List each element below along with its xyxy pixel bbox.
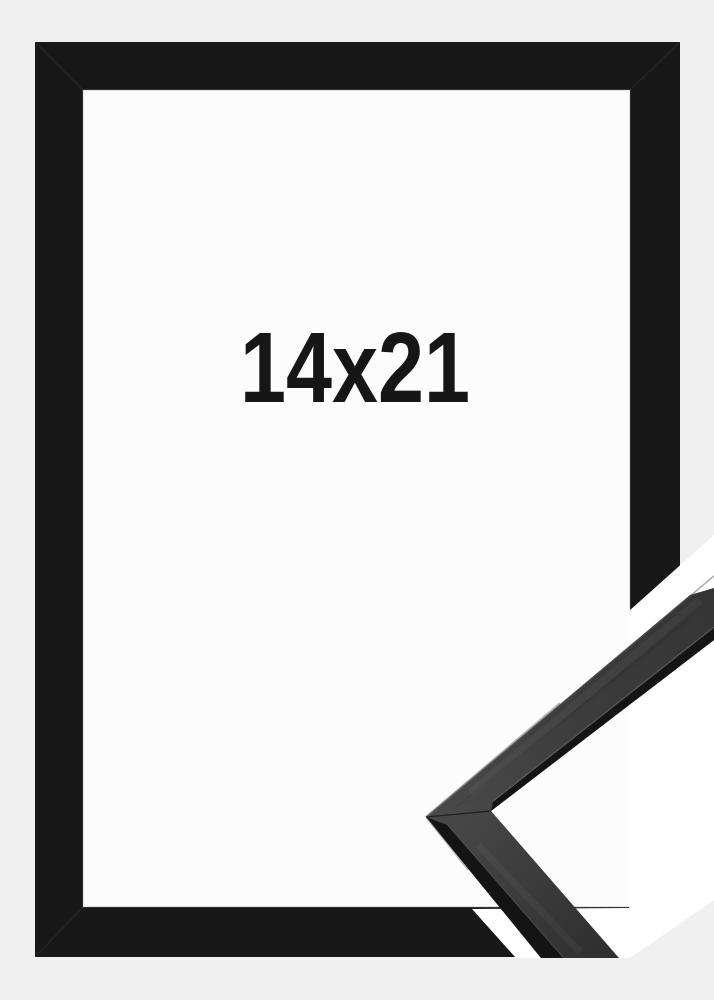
product-photo-frame-14x21: 14x21	[0, 0, 714, 1000]
frame-product-illustration: 14x21	[0, 0, 714, 1000]
size-label: 14x21	[240, 312, 470, 424]
frame-opening	[83, 90, 630, 907]
